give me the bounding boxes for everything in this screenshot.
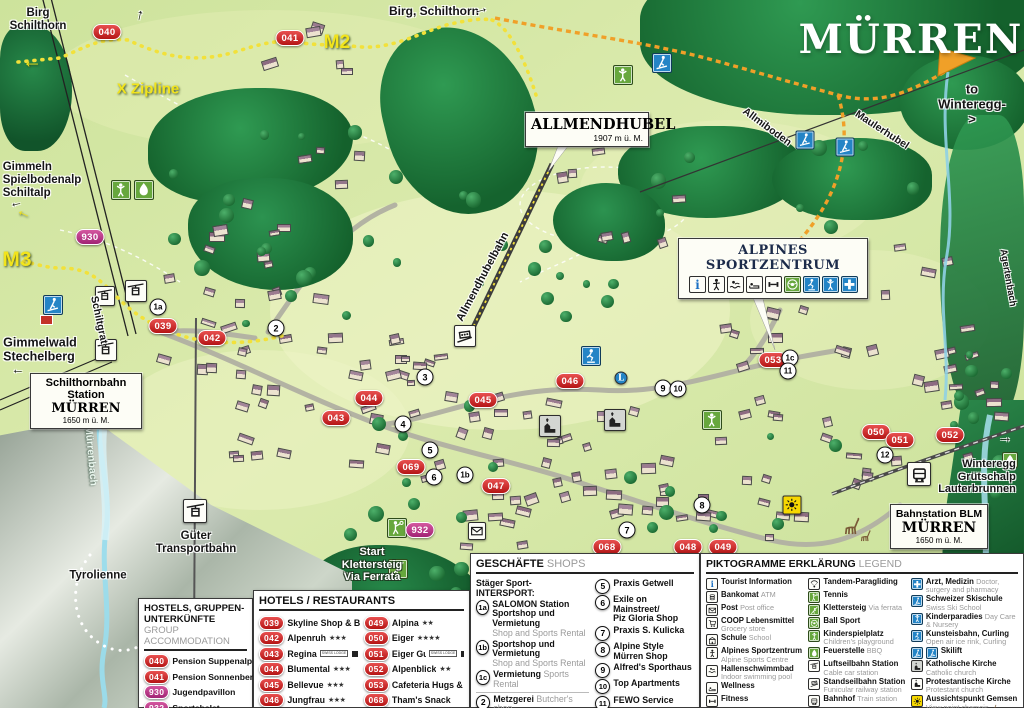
cross-icon — [911, 578, 923, 590]
skier-icon — [911, 595, 923, 607]
hotel-row: 046Jungfrau★★★ — [259, 693, 360, 707]
shop-row: 1aSALOMON StationSportshop und Vermietun… — [476, 600, 589, 639]
para-icon — [808, 578, 820, 590]
marker-7: 7 — [619, 522, 636, 539]
swim-icon — [727, 276, 744, 293]
legend-row-env: Post Post office — [706, 604, 803, 616]
legend-tag-040: 040 — [144, 654, 169, 668]
tennis-icon — [808, 591, 820, 603]
sun-icon — [911, 695, 923, 707]
legend-tag-10: 10 — [595, 679, 610, 694]
legend-tag-932: 932 — [144, 701, 169, 708]
hotel-row: 044Blumental★★★ — [259, 662, 360, 676]
flame-icon — [808, 647, 820, 659]
legend-row-kid: Kinderspielplatz Children's playground — [808, 630, 905, 646]
shops-col1-header: Stäger Sport-INTERSPORT: — [476, 578, 589, 598]
train-icon — [808, 695, 820, 707]
legend-tag-051: 051 — [364, 647, 389, 661]
panel-title: HOTELS / RESTAURANTS — [259, 595, 464, 611]
legend-tag-068: 068 — [364, 693, 389, 707]
shop-row: 1cVermietung Sports Rental — [476, 670, 589, 692]
marker-8: 8 — [694, 497, 711, 514]
ball-icon — [808, 617, 820, 629]
legend-row-skate: Kunsteisbahn, Curling Open air ice rink,… — [911, 630, 1018, 646]
hostel-row: 930Jugendpavillon — [144, 685, 247, 699]
legend-tag-039: 039 — [259, 616, 284, 630]
legend-row-ball: Ball Sport — [808, 617, 905, 629]
legend-row-cart: COOP Lebensmittel Grocery store — [706, 617, 803, 633]
legend-tag-930: 930 — [144, 685, 169, 699]
legend-row-flame: Feuerstelle BBQ — [808, 647, 905, 659]
info-icon — [706, 578, 718, 590]
legend-row-info: Tourist Information — [706, 578, 803, 590]
legend-tag-042: 042 — [259, 631, 284, 645]
schilthornbahn-elevation: 1650 m ü. M. — [33, 416, 139, 425]
legend-tag-1c: 1c — [476, 670, 490, 685]
hotel-row: 039Skyline Shop & Bar — [259, 616, 360, 630]
legend-row-train: Bahnhof Train station — [808, 695, 905, 707]
legend-tag-8: 8 — [595, 642, 610, 657]
marker-12: 12 — [877, 447, 894, 464]
legend-tag-6: 6 — [595, 595, 610, 610]
legend-row-tennis: Tennis — [808, 591, 905, 603]
kid-icon — [808, 630, 820, 642]
church-icon — [911, 678, 923, 690]
marker-043: 043 — [321, 410, 350, 426]
shop-row: 5Praxis Getwell — [595, 579, 694, 594]
shop-row: 1bSportshop und VermietungShop and Sport… — [476, 640, 589, 669]
school-icon — [706, 634, 718, 646]
marker-044: 044 — [354, 390, 383, 406]
climb-icon — [808, 604, 820, 616]
marker-040: 040 — [92, 24, 121, 40]
marker-932: 932 — [405, 522, 434, 538]
marker-4: 4 — [395, 416, 412, 433]
cross-icon — [841, 276, 858, 293]
legend-hostels-panel: HOSTELS, GRUPPEN-UNTERKÜNFTE GROUP ACCOM… — [138, 598, 253, 708]
hotel-row: 053Cafeteria Hugs & Cups — [364, 678, 465, 692]
legend-tag-043: 043 — [259, 647, 284, 661]
hotel-row: 051Eiger GuesthouseSWISS LODGE — [364, 647, 465, 661]
legend-tag-050: 050 — [364, 631, 389, 645]
legend-tag-2: 2 — [476, 695, 490, 708]
shop-row: 6Exile on Mainstreet/Piz Gloria Shop — [595, 595, 694, 624]
schilthornbahn-l1: Schilthornbahn — [33, 377, 139, 389]
cart-icon — [706, 617, 718, 629]
hostel-row: 932Sportchalet — [144, 701, 247, 708]
legend-tag-9: 9 — [595, 663, 610, 678]
panel-title: PIKTOGRAMME ERKLÄRUNG LEGEND — [706, 558, 1018, 574]
legend-row-climb: Klettersteig Via ferrata — [808, 604, 905, 616]
shop-row: 2Metzgerei Butcher's shop — [476, 695, 589, 708]
legend-row-well: Wellness — [706, 682, 803, 694]
skier-icon — [911, 647, 923, 659]
shop-row: 9Alfred's Sporthaus — [595, 663, 694, 678]
panel-title: HOSTELS, GRUPPEN-UNTERKÜNFTE GROUP ACCOM… — [144, 603, 247, 651]
legend-tag-5: 5 — [595, 579, 610, 594]
legend-tag-041: 041 — [144, 670, 169, 684]
swiss-lodge-badge: SWISS LODGE — [320, 650, 349, 658]
allmendhubel-title: ALLMENDHUBEL — [531, 116, 643, 133]
hotel-row: 049Alpina★★ — [364, 616, 465, 630]
shop-row: 10Top Apartments — [595, 679, 694, 694]
legend-row-kid: Kinderparadies Day Care & Nursery — [911, 613, 1018, 629]
legend-tag-045: 045 — [259, 678, 284, 692]
legend-hotels-panel: HOTELS / RESTAURANTS039Skyline Shop & Ba… — [253, 590, 470, 708]
hotel-row: 045Bellevue★★★ — [259, 678, 360, 692]
marker-1b: 1b — [457, 467, 474, 484]
murren-tourist-map: i — [0, 0, 1024, 708]
skate-icon — [911, 630, 923, 642]
info-icon — [689, 276, 706, 293]
marker-069: 069 — [396, 459, 425, 475]
shop-row: 11FEWO Service — [595, 696, 694, 708]
legend-row-cross: Arzt, Medizin Doctor, surgery and pharma… — [911, 578, 1018, 594]
shop-row: 8Alpine StyleMürren Shop — [595, 642, 694, 661]
bahnstation-elevation: 1650 m ü. M. — [893, 536, 985, 545]
allmendhubel-elevation: 1907 m ü. M. — [531, 133, 643, 143]
marker-2: 2 — [268, 320, 285, 337]
legend-row-para: Tandem-Paragliding — [808, 578, 905, 590]
hostel-row: 041Pension Sonnenberg — [144, 670, 247, 684]
legend-tag-1b: 1b — [476, 640, 489, 655]
legend-tag-053: 053 — [364, 678, 389, 692]
marker-10: 10 — [670, 381, 687, 398]
marker-1a: 1a — [150, 299, 167, 316]
skier-icon — [926, 647, 938, 659]
fit-icon — [706, 695, 718, 707]
well-icon — [706, 682, 718, 694]
marker-6: 6 — [426, 469, 443, 486]
kid-icon — [822, 276, 839, 293]
atm-icon — [706, 591, 718, 603]
legend-tag-7: 7 — [595, 626, 610, 641]
bahnstation-l2: MÜRREN — [893, 520, 985, 536]
person-icon — [708, 276, 725, 293]
person-icon — [706, 647, 718, 659]
legend-tag-049: 049 — [364, 616, 389, 630]
legend-row-church: Katholische Kirche Catholic church — [911, 660, 1018, 676]
hotel-row: 052Alpenblick★★ — [364, 662, 465, 676]
marker-045: 045 — [468, 392, 497, 408]
hotel-row: 068Tham's Snack — [364, 693, 465, 707]
legend-row-school: Schule School — [706, 634, 803, 646]
well-icon — [746, 276, 763, 293]
legend-tag-11: 11 — [595, 696, 610, 708]
hostel-row: 040Pension Suppenalp — [144, 654, 247, 668]
shop-row: 7Praxis S. Kulicka — [595, 626, 694, 641]
church-icon — [911, 660, 923, 672]
marker-047: 047 — [481, 478, 510, 494]
legend-row-person: Alpines Sportzentrum Alpine Sports Centr… — [706, 647, 803, 663]
marker-3: 3 — [417, 369, 434, 386]
ball-icon — [784, 276, 801, 293]
env-icon — [706, 604, 718, 616]
marker-039: 039 — [148, 318, 177, 334]
legend-tag-046: 046 — [259, 693, 284, 707]
legend-picto-panel: PIKTOGRAMME ERKLÄRUNG LEGENDTourist Info… — [700, 553, 1024, 708]
legend-tag-052: 052 — [364, 662, 389, 676]
marker-5: 5 — [422, 442, 439, 459]
skate-icon — [803, 276, 820, 293]
legend-row-atm: Bankomat ATM — [706, 591, 803, 603]
sportzentrum-box: ALPINES SPORTZENTRUM — [678, 238, 868, 299]
hotel-row: 050Eiger★★★★ — [364, 631, 465, 645]
hotel-logo-badge — [461, 651, 464, 657]
legend-shops-panel: GESCHÄFTE SHOPSStäger Sport-INTERSPORT:1… — [470, 553, 700, 708]
schilthornbahn-l2: Station — [67, 389, 104, 401]
allmendhubel-box: ALLMENDHUBEL 1907 m ü. M. — [525, 112, 649, 147]
funi-icon — [808, 678, 820, 690]
legend-row-skier: Schweizer Skischule Swiss Ski School — [911, 595, 1018, 611]
marker-11: 11 — [780, 363, 797, 380]
sportzentrum-icons — [683, 276, 863, 293]
legend-row-fit: Fitness — [706, 695, 803, 707]
hotel-row: 043ReginaSWISS LODGE — [259, 647, 360, 661]
panel-title: GESCHÄFTE SHOPS — [476, 558, 694, 574]
swim-icon — [706, 665, 718, 677]
sportzentrum-title: ALPINES SPORTZENTRUM — [683, 243, 863, 273]
schilthornbahn-l2b: MÜRREN — [51, 401, 120, 416]
bahnstation-box: Bahnstation BLM MÜRREN 1650 m ü. M. — [890, 504, 988, 549]
legend-row-skier: Skilift — [911, 647, 1018, 659]
legend-tag-1a: 1a — [476, 600, 489, 615]
legend-row-sun: Aussichtspunkt Gemsen View point chamois — [911, 695, 1018, 708]
hotel-row: 042Alpenruh★★★ — [259, 631, 360, 645]
legend-row-swim: Hallenschwimmbad Indoor swimming pool — [706, 665, 803, 681]
legend-row-church: Protestantische Kirche Protestant church — [911, 678, 1018, 694]
schilthornbahn-box: Schilthornbahn Station MÜRREN 1650 m ü. … — [30, 373, 142, 429]
cable-icon — [808, 660, 820, 672]
fit-icon — [765, 276, 782, 293]
legend-row-funi: Standseilbahn Station Funicular railway … — [808, 678, 905, 694]
legend-row-cable: Luftseilbahn Station Cable car station — [808, 660, 905, 676]
chamois-icon — [989, 703, 999, 708]
legend-tag-044: 044 — [259, 662, 284, 676]
marker-051: 051 — [885, 432, 914, 448]
marker-930: 930 — [75, 229, 104, 245]
marker-041: 041 — [275, 30, 304, 46]
kid-icon — [911, 613, 923, 625]
marker-046: 046 — [555, 373, 584, 389]
marker-042: 042 — [197, 330, 226, 346]
bahnstation-l1: Bahnstation BLM — [893, 508, 985, 520]
swiss-lodge-badge: SWISS LODGE — [429, 650, 458, 658]
marker-052: 052 — [935, 427, 964, 443]
hotel-logo-badge — [352, 651, 358, 657]
